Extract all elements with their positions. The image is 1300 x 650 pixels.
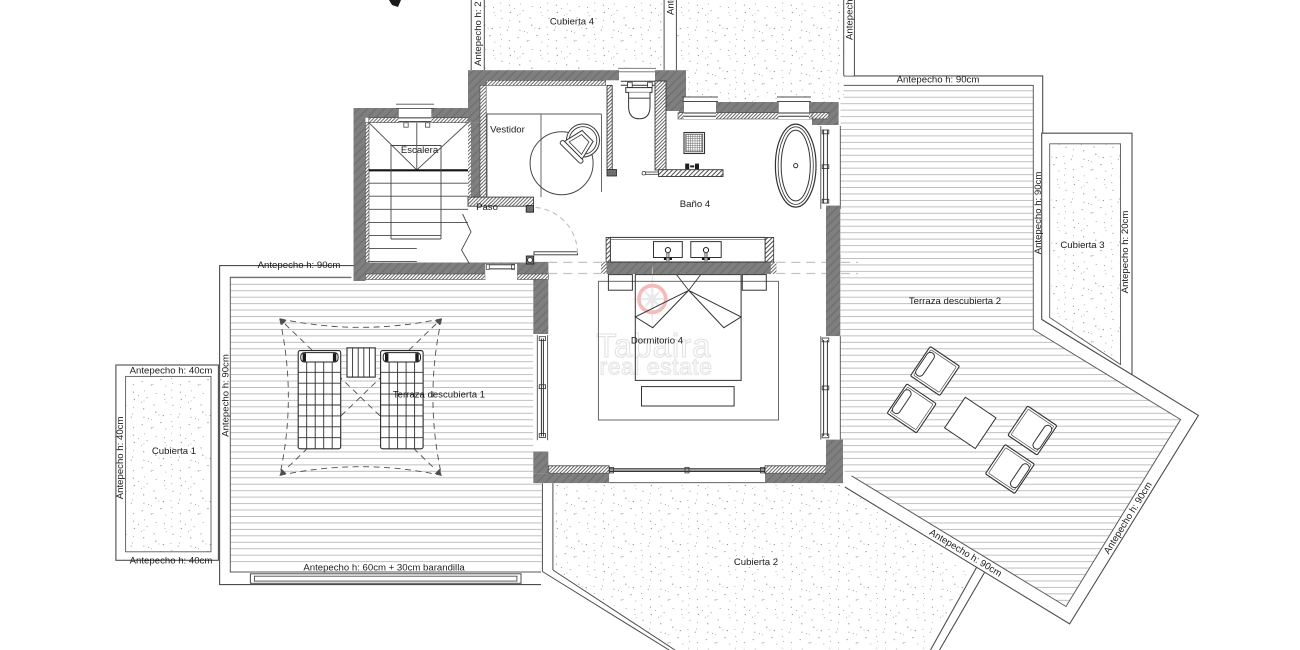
- svg-text:Antepecho h: 90cm: Antepecho h: 90cm: [845, 0, 856, 40]
- svg-text:Antepecho h: 90cm: Antepecho h: 90cm: [1033, 172, 1044, 255]
- svg-text:Dormitorio 4: Dormitorio 4: [631, 335, 684, 346]
- svg-text:Cubierta 3: Cubierta 3: [1060, 240, 1104, 251]
- svg-text:Paso: Paso: [476, 202, 498, 213]
- svg-text:Vestidor: Vestidor: [490, 125, 525, 136]
- svg-text:Antepecho h: 40cm: Antepecho h: 40cm: [130, 366, 213, 377]
- svg-text:Cubierta 1: Cubierta 1: [152, 446, 196, 457]
- svg-text:Antepecho h: 20cm: Antepecho h: 20cm: [1120, 211, 1131, 294]
- svg-text:Cubierta 2: Cubierta 2: [734, 557, 778, 568]
- svg-text:Antepecho h: 90cm: Antepecho h: 90cm: [221, 354, 232, 437]
- svg-text:Antepecho h: 40cm: Antepecho h: 40cm: [130, 556, 213, 567]
- svg-text:Antepecho h: 40cm: Antepecho h: 40cm: [115, 417, 126, 500]
- svg-text:Antepecho h: 2: Antepecho h: 2: [473, 1, 484, 66]
- svg-text:Terraza descubierta 2: Terraza descubierta 2: [909, 296, 1001, 307]
- svg-text:Antepecho h: 90cm: Antepecho h: 90cm: [258, 260, 341, 271]
- svg-text:Baño 4: Baño 4: [680, 199, 711, 210]
- svg-text:Ante: Ante: [666, 0, 677, 15]
- svg-text:real estate: real estate: [600, 354, 713, 380]
- svg-text:Antepecho h: 90cm: Antepecho h: 90cm: [897, 74, 980, 85]
- svg-text:Antepecho h: 60cm + 30cm bara: Antepecho h: 60cm + 30cm barandilla: [303, 562, 465, 573]
- svg-text:Escalera: Escalera: [401, 145, 439, 156]
- svg-text:Terraza descubierta 1: Terraza descubierta 1: [393, 390, 485, 401]
- svg-text:Cubierta 4: Cubierta 4: [550, 17, 595, 28]
